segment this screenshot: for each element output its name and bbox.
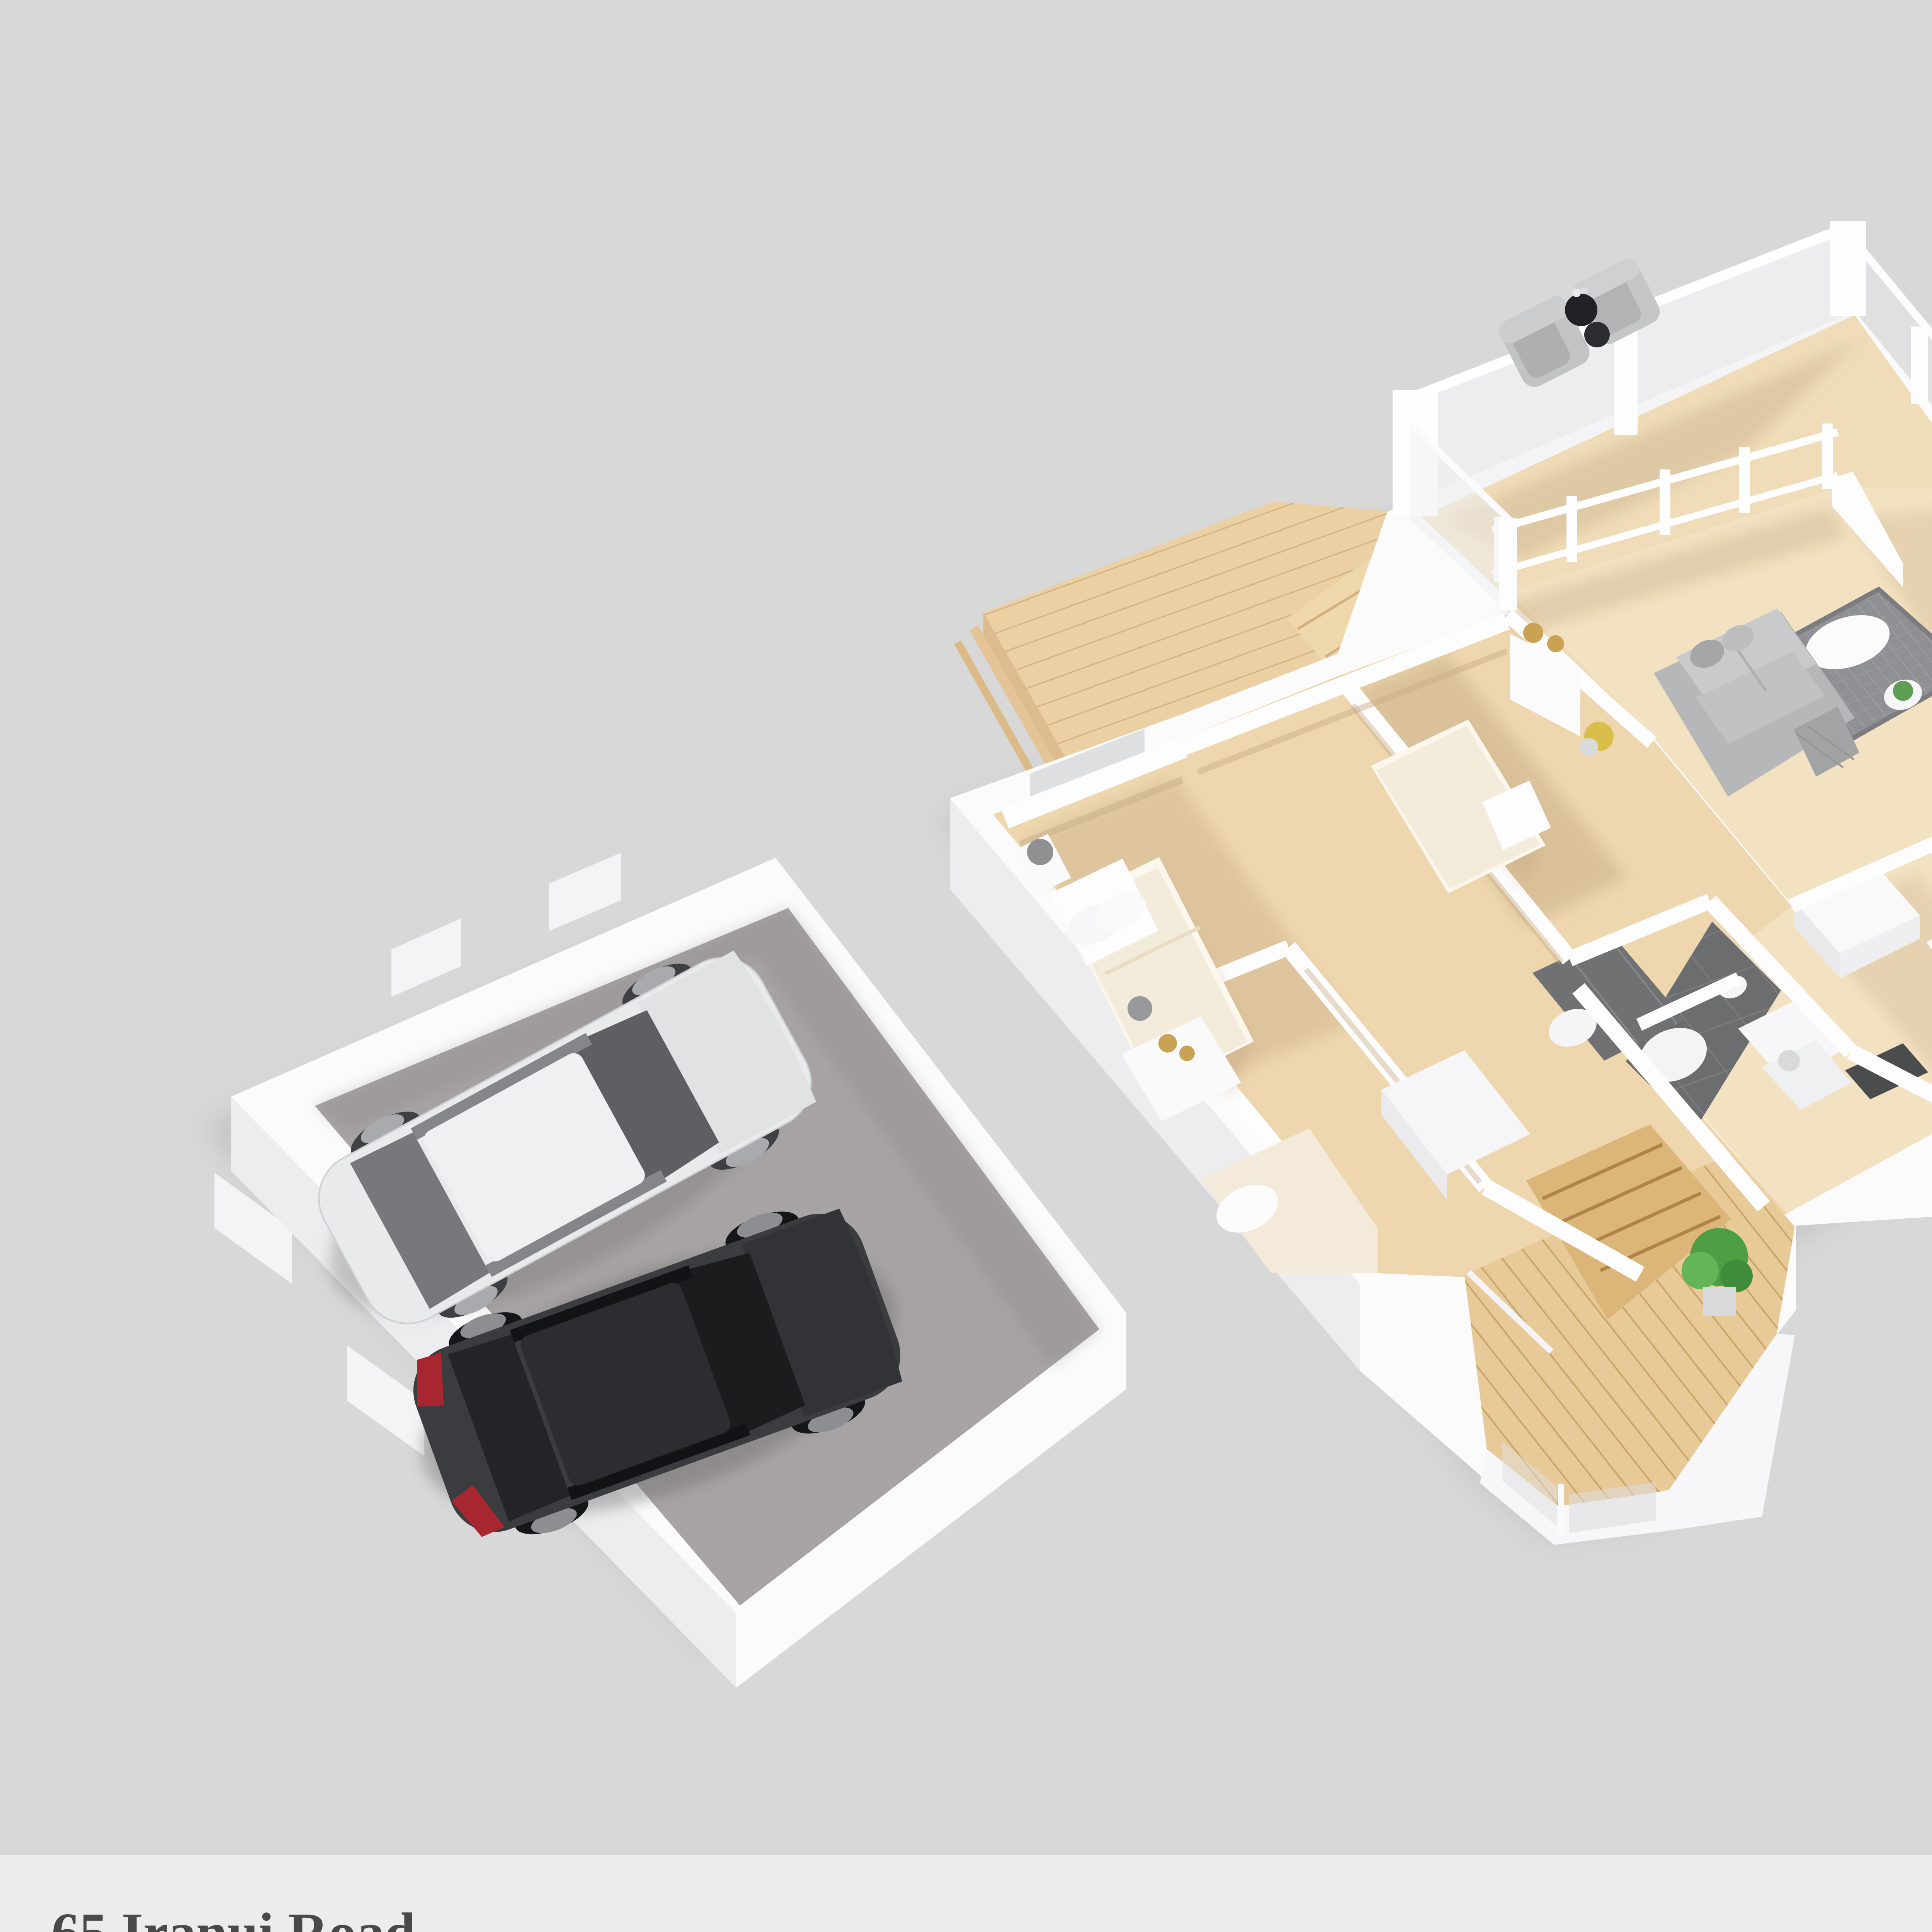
svg-text:65 Iranui Road: 65 Iranui Road	[51, 1902, 416, 1932]
